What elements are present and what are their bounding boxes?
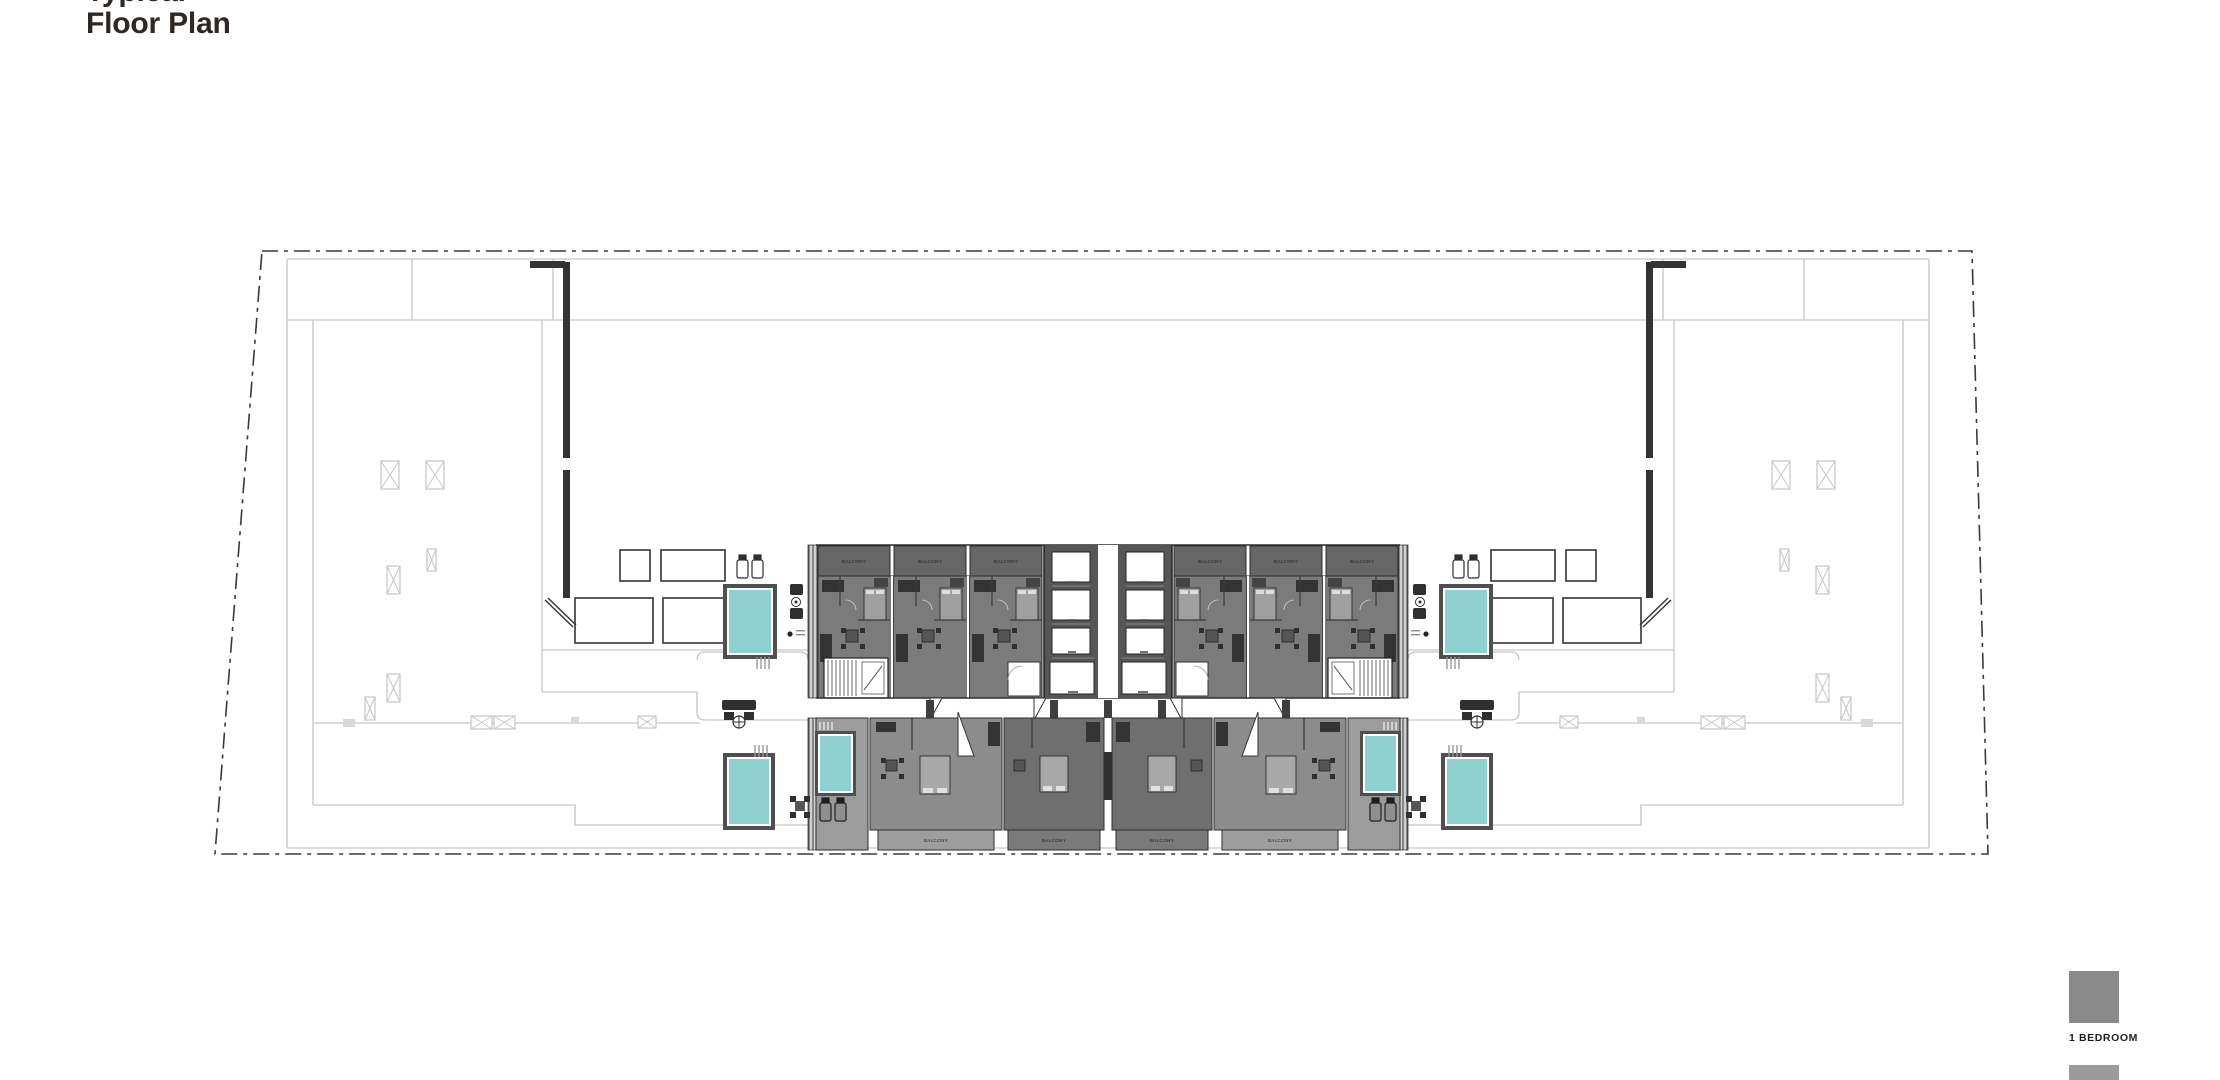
sofa-umbrella: [722, 700, 756, 728]
skylight-boxes: [365, 461, 656, 729]
plan-left-half: [287, 259, 1108, 850]
door-swing: [545, 598, 576, 627]
roof-vents: [343, 717, 579, 727]
gap-connectors: [926, 700, 1108, 718]
wing-walls: [530, 261, 570, 598]
service-room: [1008, 662, 1040, 696]
svg-text:BALCONY: BALCONY: [918, 559, 942, 564]
louver-band-top: [808, 545, 818, 698]
skylight-crosses: [365, 461, 656, 729]
center-party-wall: [1104, 752, 1108, 800]
legend-swatch-1bedroom: [2069, 971, 2119, 1023]
pool-chairs: [790, 584, 803, 619]
dining-set: [790, 796, 810, 818]
svg-text:BALCONY: BALCONY: [1042, 838, 1066, 843]
floor-plan-drawing: BALCONY BALCONY BALCONY BALCONY BALCONY …: [0, 0, 2220, 1080]
floor-plan-page: Typical Floor Plan: [0, 0, 2220, 1080]
stairwell: [824, 658, 888, 698]
pool-terrace: [815, 722, 856, 796]
svg-text:BALCONY: BALCONY: [1268, 838, 1292, 843]
pool-top: [723, 584, 777, 669]
svg-text:BALCONY: BALCONY: [1274, 559, 1298, 564]
sun-loungers: [737, 555, 763, 578]
svg-text:BALCONY: BALCONY: [1350, 559, 1374, 564]
legend-swatch-partial: [2069, 1065, 2119, 1080]
elevator-core: [1044, 545, 1108, 698]
svg-text:BALCONY: BALCONY: [1150, 838, 1174, 843]
pool-bottom: [723, 745, 775, 830]
plan-right-half-mirror: [1108, 259, 1929, 850]
svg-text:BALCONY: BALCONY: [994, 559, 1018, 564]
legend-label-1bedroom: 1 BEDROOM: [2069, 1032, 2189, 1044]
svg-text:BALCONY: BALCONY: [842, 559, 866, 564]
door-leafs: [930, 698, 1046, 720]
svg-text:BALCONY: BALCONY: [924, 838, 948, 843]
svg-text:BALCONY: BALCONY: [1198, 559, 1222, 564]
corridor-rooms: [575, 550, 728, 643]
legend: 1 BEDROOM: [2069, 971, 2189, 1080]
